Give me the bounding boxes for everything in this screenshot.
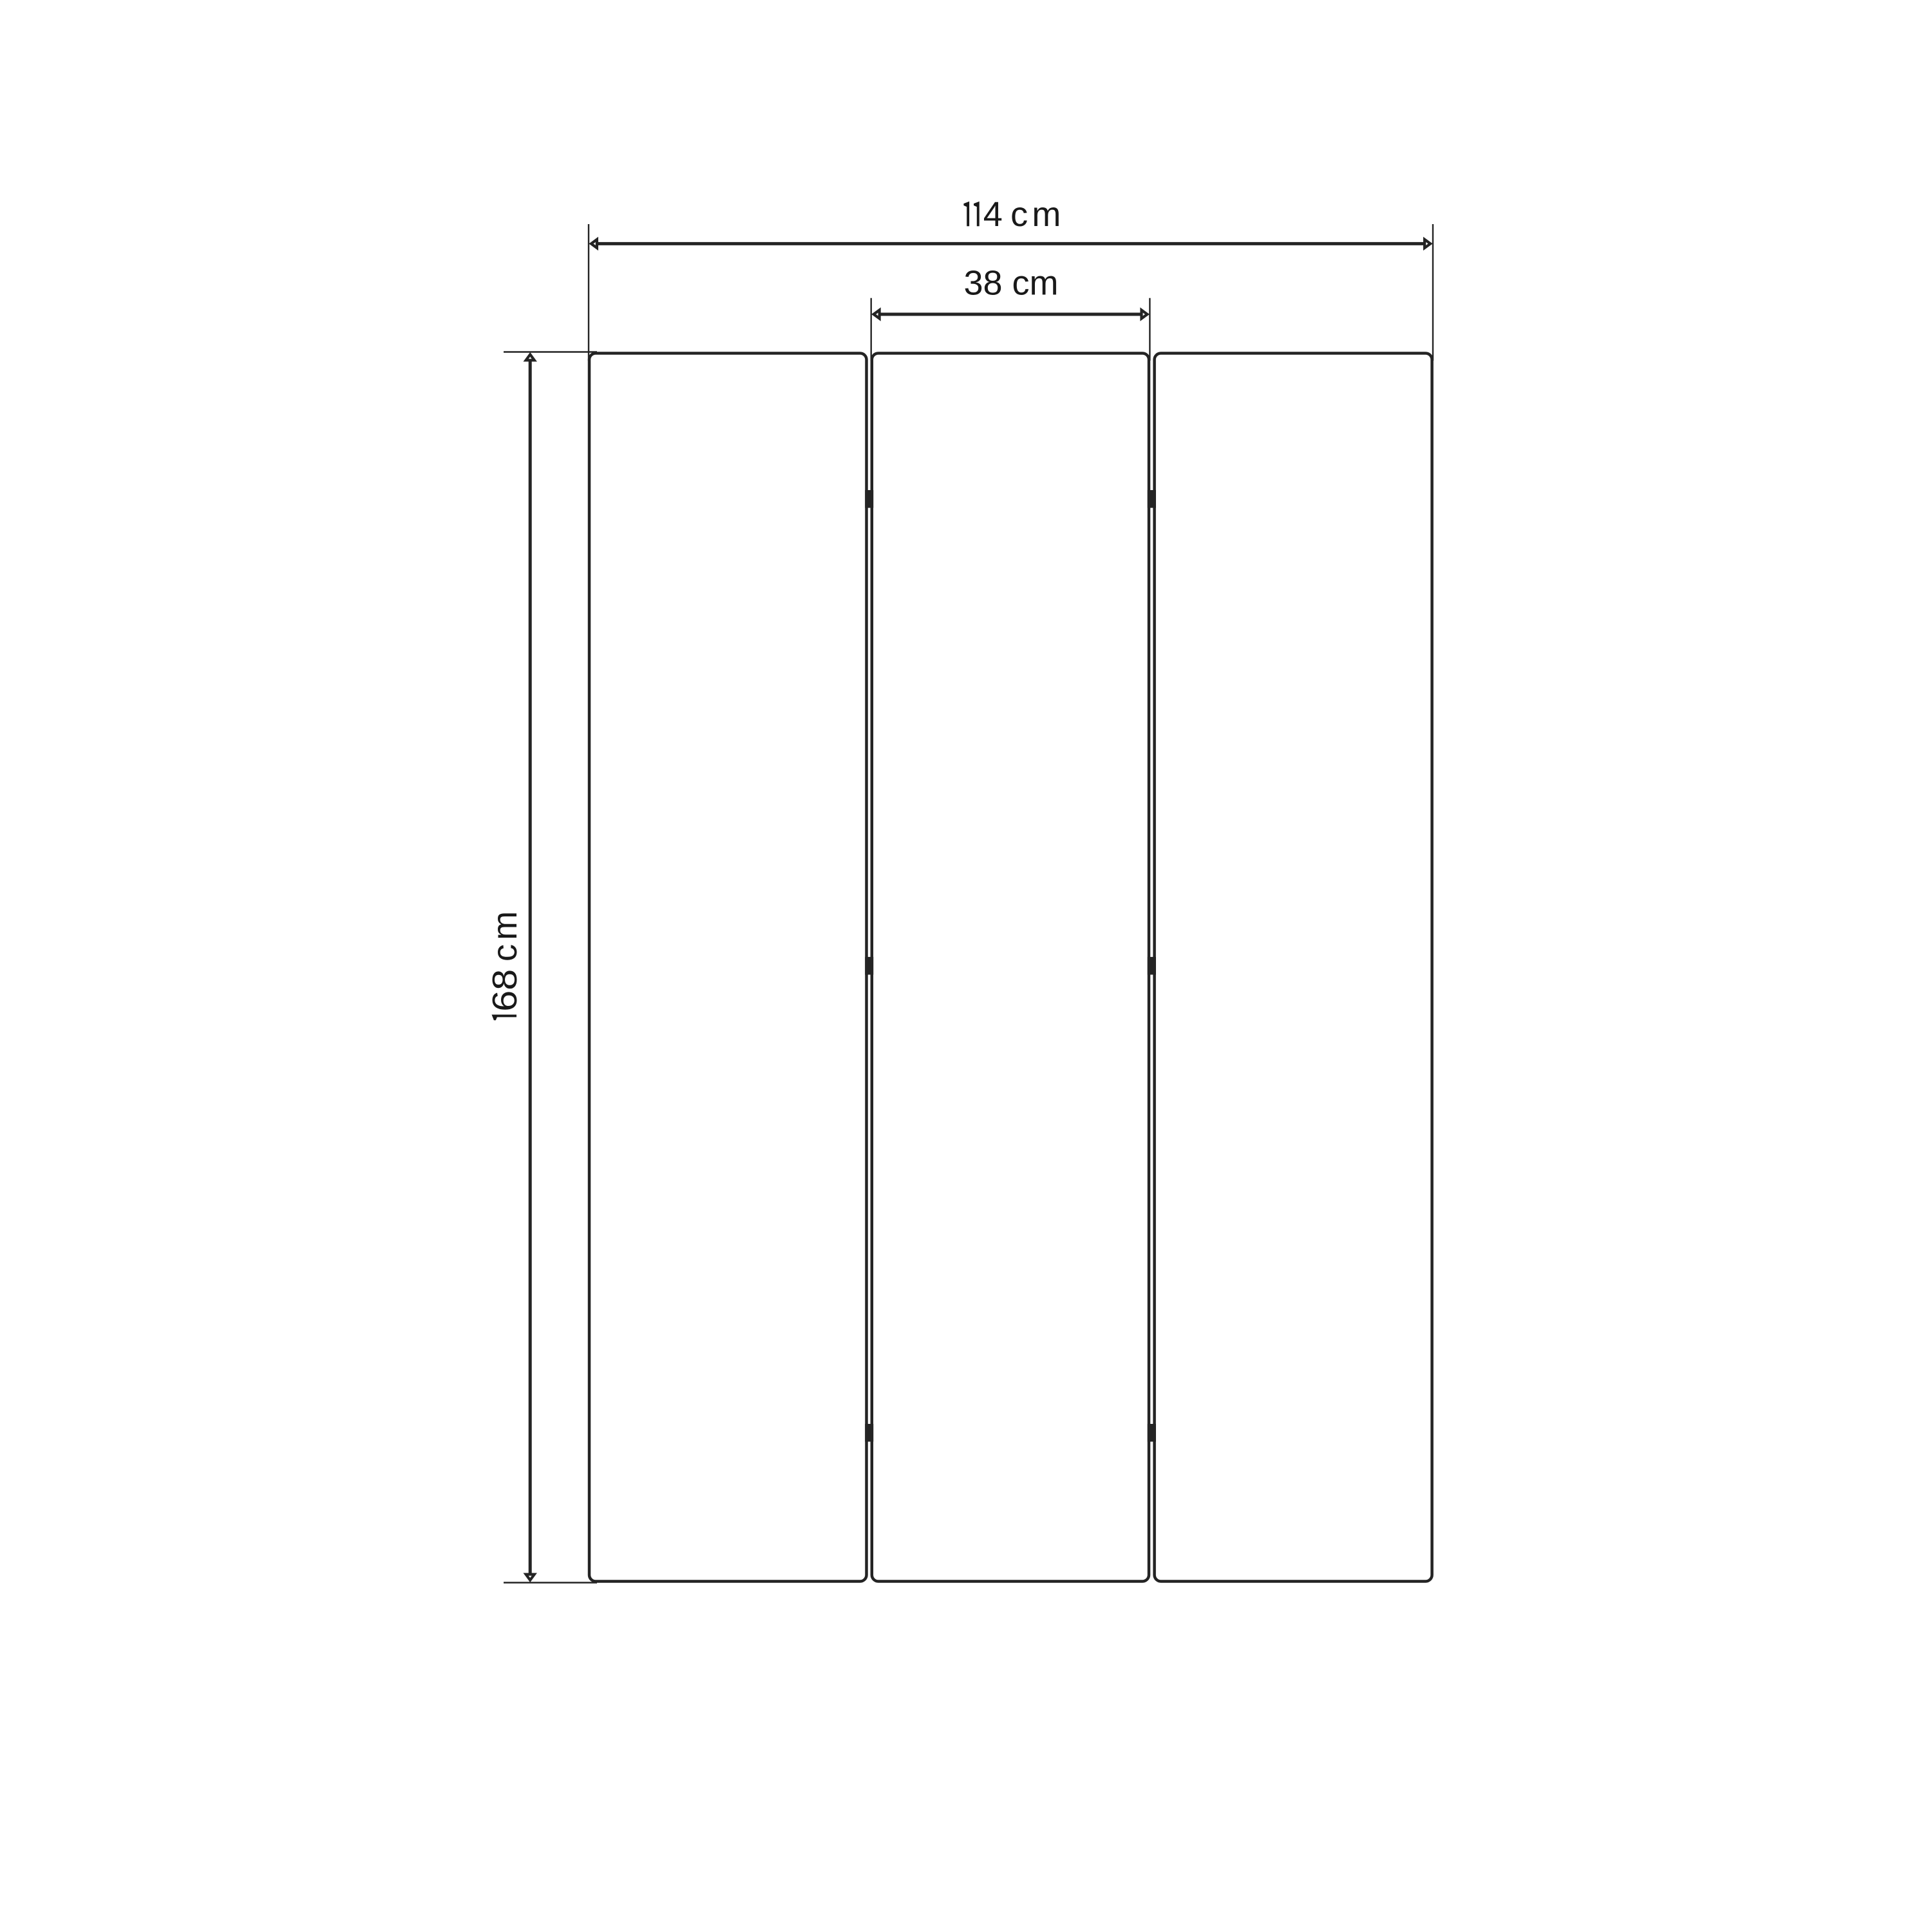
svg-text:68: 68 [486,969,524,1012]
svg-text:cm: cm [486,911,524,961]
svg-text:4: 4 [983,195,1003,234]
svg-text:38 cm: 38 cm [963,263,1058,302]
svg-text:cm: cm [1010,195,1061,234]
